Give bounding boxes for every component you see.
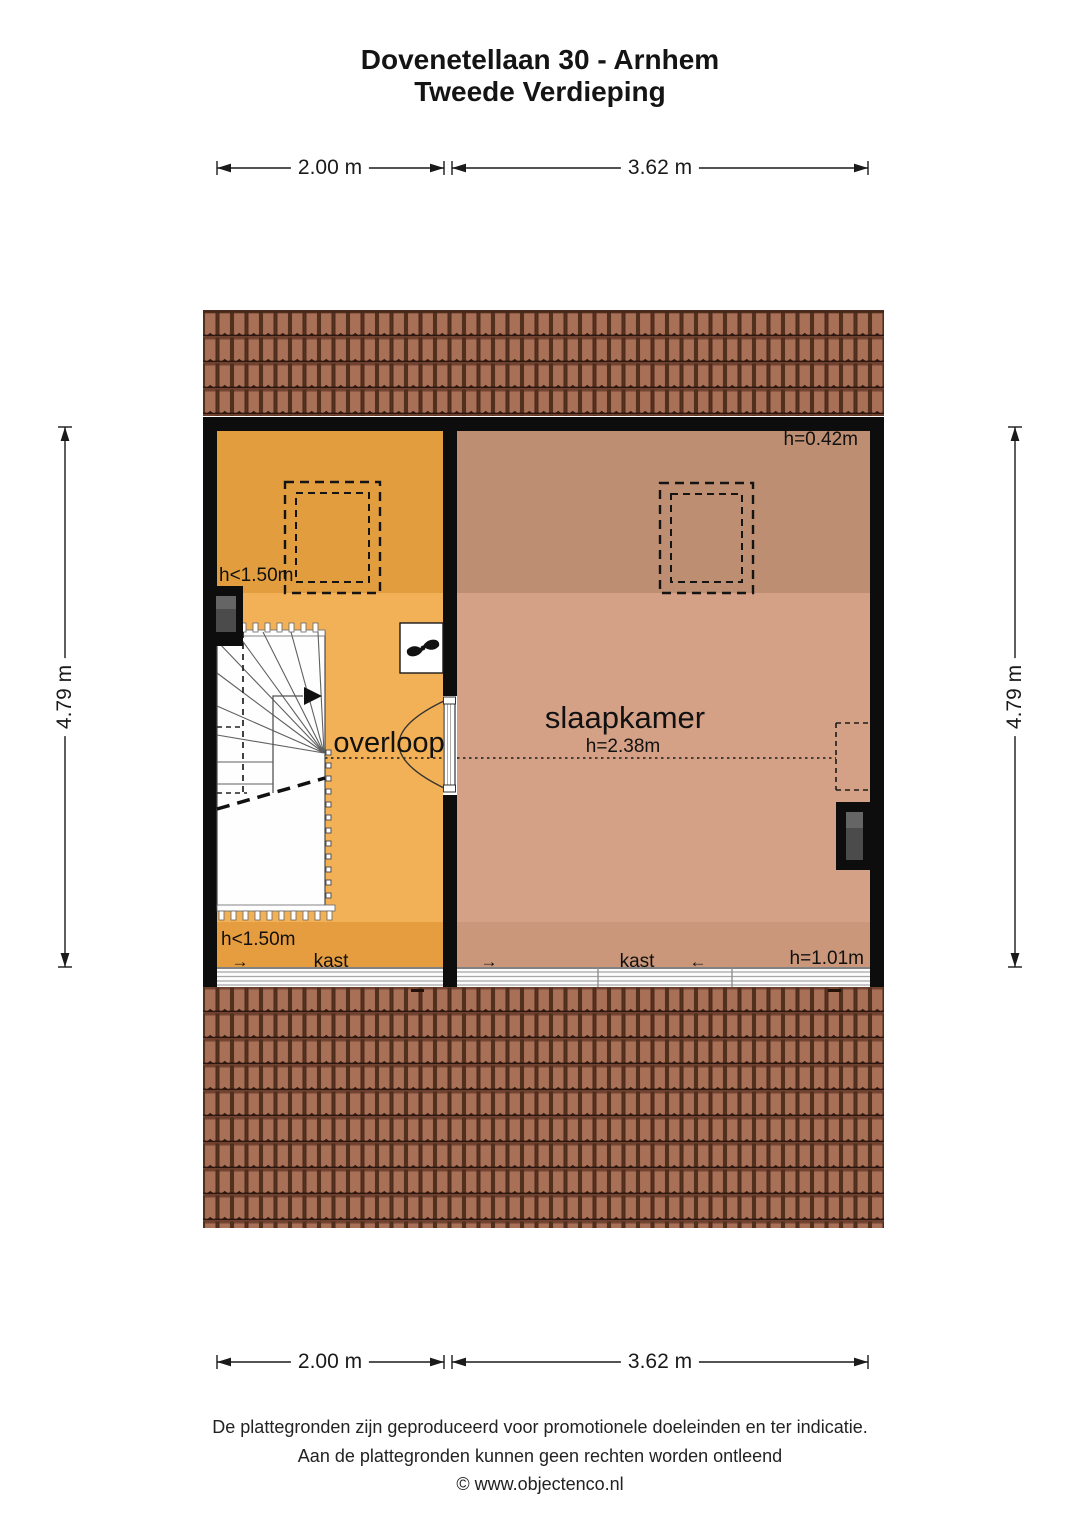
slaapkamer-low-ceiling-zone-top	[457, 431, 870, 593]
wall-top	[203, 417, 884, 431]
door-leaf	[444, 699, 455, 790]
overloop-height-top-label: h<1.50m	[219, 565, 293, 587]
overloop-closet-label: kast	[314, 951, 349, 973]
window-right	[836, 802, 870, 870]
stairs	[217, 623, 335, 920]
wall-right	[870, 417, 884, 987]
slaapkamer-closet-arrow-right: ←	[690, 952, 707, 972]
footer-copyright: © www.objectenco.nl	[456, 1474, 623, 1495]
dimension-label-bottom-left: 2.00 m	[291, 1350, 369, 1374]
floorplan-drawing	[0, 0, 1080, 1527]
overloop-closet-arrow: →	[232, 952, 249, 972]
room-label-overloop: overloop	[333, 727, 444, 760]
wall-divider-upper	[443, 417, 457, 696]
roof-mark	[411, 989, 424, 992]
page-title-floor: Tweede Verdieping	[414, 76, 666, 108]
footer-disclaimer-line1: De plattegronden zijn geproduceerd voor …	[212, 1417, 867, 1438]
roof-mark	[828, 989, 841, 992]
roof-bottom	[203, 987, 884, 1228]
ventilation-unit	[400, 623, 443, 673]
dimension-label-bottom-right: 3.62 m	[621, 1350, 699, 1374]
dimension-label-top-right: 3.62 m	[621, 156, 699, 180]
slaapkamer-height-bottomright-label: h=1.01m	[790, 948, 864, 970]
page-title-address: Dovenetellaan 30 - Arnhem	[361, 44, 719, 76]
roof-top	[203, 310, 884, 416]
window-left	[203, 586, 243, 646]
slaapkamer-ceiling-height-label: h=2.38m	[586, 736, 660, 758]
wall-divider-lower	[443, 795, 457, 987]
slaapkamer-room	[457, 431, 870, 967]
dimension-label-side-left: 4.79 m	[53, 658, 77, 736]
dimension-label-top-left: 2.00 m	[291, 156, 369, 180]
wall-left	[203, 417, 217, 987]
slaapkamer-closet-label: kast	[620, 951, 655, 973]
footer-disclaimer-line2: Aan de plattegronden kunnen geen rechten…	[298, 1446, 782, 1467]
floorplan-page: Dovenetellaan 30 - Arnhem Tweede Verdiep…	[0, 0, 1080, 1527]
overloop-height-bottom-label: h<1.50m	[221, 929, 295, 951]
slaapkamer-closet-arrow-left: →	[481, 952, 498, 972]
room-label-slaapkamer: slaapkamer	[545, 700, 705, 736]
slaapkamer-height-topright-label: h=0.42m	[784, 429, 858, 451]
dimension-label-side-right: 4.79 m	[1003, 658, 1027, 736]
